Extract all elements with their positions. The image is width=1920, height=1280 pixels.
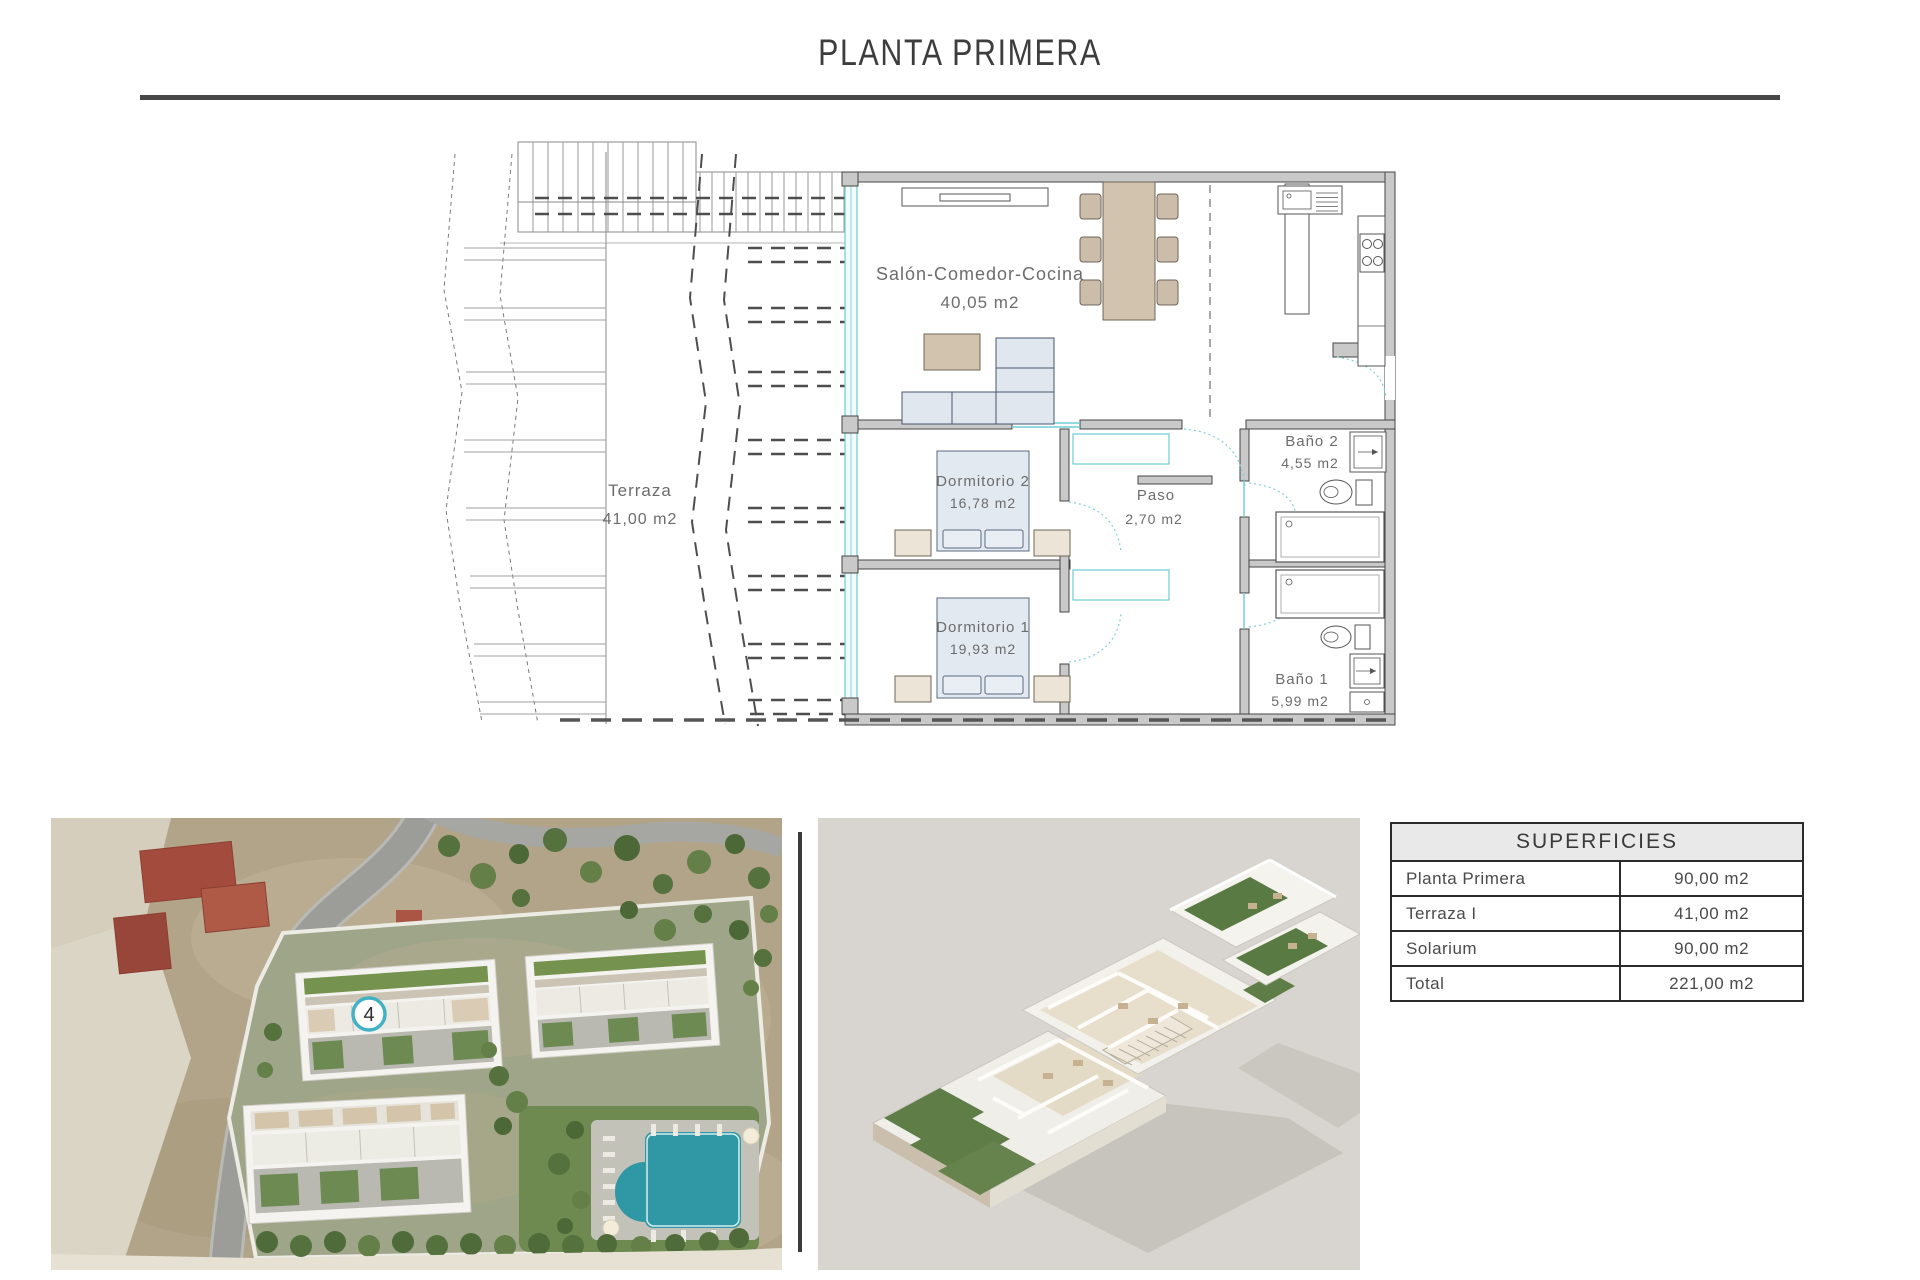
pergola-hatch: [500, 172, 846, 243]
kitchen-area: [1210, 184, 1385, 418]
table-row: Solarium 90,00 m2: [1392, 930, 1802, 965]
paso-area: 2,70 m2: [1125, 511, 1183, 527]
dormitorio2-label: Dormitorio 2: [936, 473, 1030, 490]
nightstand-icon: [1034, 530, 1070, 556]
site-aerial-drawing: 4: [51, 818, 782, 1270]
shower-icon: [1276, 570, 1384, 618]
tv-unit-icon: [902, 188, 1048, 206]
table-row: Planta Primera 90,00 m2: [1392, 862, 1802, 895]
toilet-icon: [1320, 480, 1372, 505]
bano1-area: 5,99 m2: [1271, 693, 1329, 709]
toilet-icon: [1321, 625, 1370, 649]
title-rule: [140, 95, 1780, 100]
dormitorio1-area: 19,93 m2: [950, 641, 1016, 657]
row-label: Solarium: [1392, 932, 1621, 965]
row-label: Total: [1392, 967, 1621, 1000]
nightstand-icon: [895, 676, 931, 702]
wardrobe-icon: [1073, 570, 1169, 600]
shower-icon: [1276, 512, 1384, 562]
row-label: Planta Primera: [1392, 862, 1621, 895]
site-aerial-photo: 4: [51, 818, 782, 1270]
paso-label: Paso: [1137, 487, 1175, 504]
nightstand-icon: [895, 530, 931, 556]
brochure-page: PLANTA PRIMERA: [0, 0, 1920, 1280]
salon-area: 40,05 m2: [941, 293, 1020, 312]
table-row: Total 221,00 m2: [1392, 965, 1802, 1000]
basin-icon: [1350, 654, 1384, 712]
nightstand-icon: [1034, 676, 1070, 702]
image-divider: [798, 832, 802, 1252]
page-title: PLANTA PRIMERA: [173, 32, 1747, 74]
stair-grid: [518, 142, 696, 232]
hallway: Paso 2,70 m2: [1125, 487, 1183, 527]
floor-plan: Terraza 41,00 m2: [440, 140, 1400, 740]
bano2-area: 4,55 m2: [1281, 455, 1339, 471]
coffee-table-icon: [924, 334, 980, 370]
wardrobe-icon: [1073, 434, 1169, 464]
parasol-icon: [743, 1128, 759, 1144]
areas-table-header: SUPERFICIES: [1390, 822, 1804, 862]
floor-plan-drawing: Terraza 41,00 m2: [440, 140, 1400, 740]
terrace-edge-lines: [444, 152, 606, 724]
glass-wall: [845, 183, 857, 717]
dormitorio1-label: Dormitorio 1: [936, 619, 1030, 636]
row-value: 221,00 m2: [1621, 967, 1802, 1000]
terraza-area: 41,00 m2: [603, 511, 678, 528]
basin-icon: [1350, 432, 1386, 472]
salon-room: Salón-Comedor-Cocina 40,05 m2: [876, 182, 1178, 424]
areas-table-body: Planta Primera 90,00 m2 Terraza I 41,00 …: [1390, 862, 1804, 1002]
render-3d: [818, 818, 1360, 1270]
bedroom1: Dormitorio 1 19,93 m2: [895, 570, 1169, 702]
terraza-label: Terraza: [608, 481, 672, 500]
row-value: 90,00 m2: [1621, 862, 1802, 895]
bathroom2: Baño 2 4,55 m2: [1276, 432, 1386, 562]
salon-label: Salón-Comedor-Cocina: [876, 264, 1084, 284]
terrace-deck-lines: [464, 248, 606, 714]
bedroom2: Dormitorio 2 16,78 m2: [895, 434, 1169, 556]
render-3d-drawing: [818, 818, 1360, 1270]
areas-table: SUPERFICIES Planta Primera 90,00 m2 Terr…: [1390, 822, 1804, 1002]
row-value: 90,00 m2: [1621, 932, 1802, 965]
dining-table-icon: [1080, 182, 1178, 320]
villa-block-sw: [243, 1094, 471, 1223]
villa-block-ne: [525, 943, 720, 1058]
row-value: 41,00 m2: [1621, 897, 1802, 930]
bathroom1: Baño 1 5,99 m2: [1271, 570, 1384, 712]
unit-marker-number: 4: [363, 1004, 374, 1026]
table-row: Terraza I 41,00 m2: [1392, 895, 1802, 930]
unit-marker-badge: 4: [353, 998, 385, 1030]
row-label: Terraza I: [1392, 897, 1621, 930]
pool-zone: [519, 1106, 759, 1252]
villa-block-nw: [295, 959, 502, 1081]
dormitorio2-area: 16,78 m2: [950, 495, 1016, 511]
terrace-area: Terraza 41,00 m2: [444, 142, 846, 726]
bano1-label: Baño 1: [1275, 671, 1329, 688]
bano2-label: Baño 2: [1285, 433, 1339, 450]
sink-icon: [1278, 186, 1342, 214]
parasol-icon: [603, 1220, 619, 1236]
